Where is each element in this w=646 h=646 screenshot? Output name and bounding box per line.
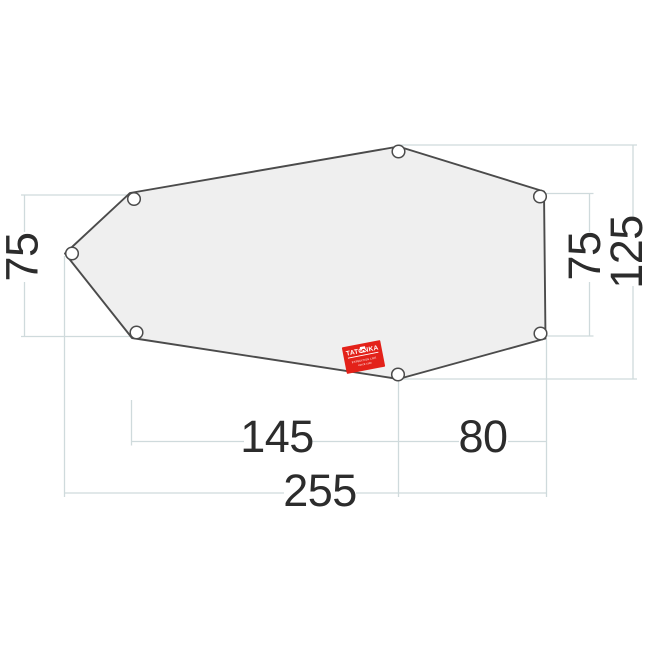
- dim-label-125-group: 125: [601, 215, 646, 289]
- dim-label-255: 255: [283, 465, 357, 516]
- dim-label-left-75: 75: [0, 232, 48, 281]
- footprint-diagram: TATONKA EXPEDITION LIFE SINCE 1980 75 75: [0, 0, 646, 646]
- dim-label-left-75-group: 75: [0, 232, 48, 281]
- grommet-icon: [534, 190, 547, 203]
- dim-label-125: 125: [601, 215, 646, 289]
- grommet-icon: [130, 326, 143, 339]
- grommet-icon: [534, 327, 547, 340]
- dim-label-80: 80: [458, 411, 507, 462]
- dim-label-145: 145: [240, 411, 314, 462]
- shape-group: [65, 145, 547, 381]
- grommet-icon: [66, 247, 79, 260]
- grommet-icon: [392, 145, 405, 158]
- grommet-icon: [392, 368, 405, 381]
- grommet-icon: [128, 193, 141, 206]
- groundsheet-shape: [65, 147, 546, 380]
- diagram-canvas: TATONKA EXPEDITION LIFE SINCE 1980 75 75: [0, 0, 646, 646]
